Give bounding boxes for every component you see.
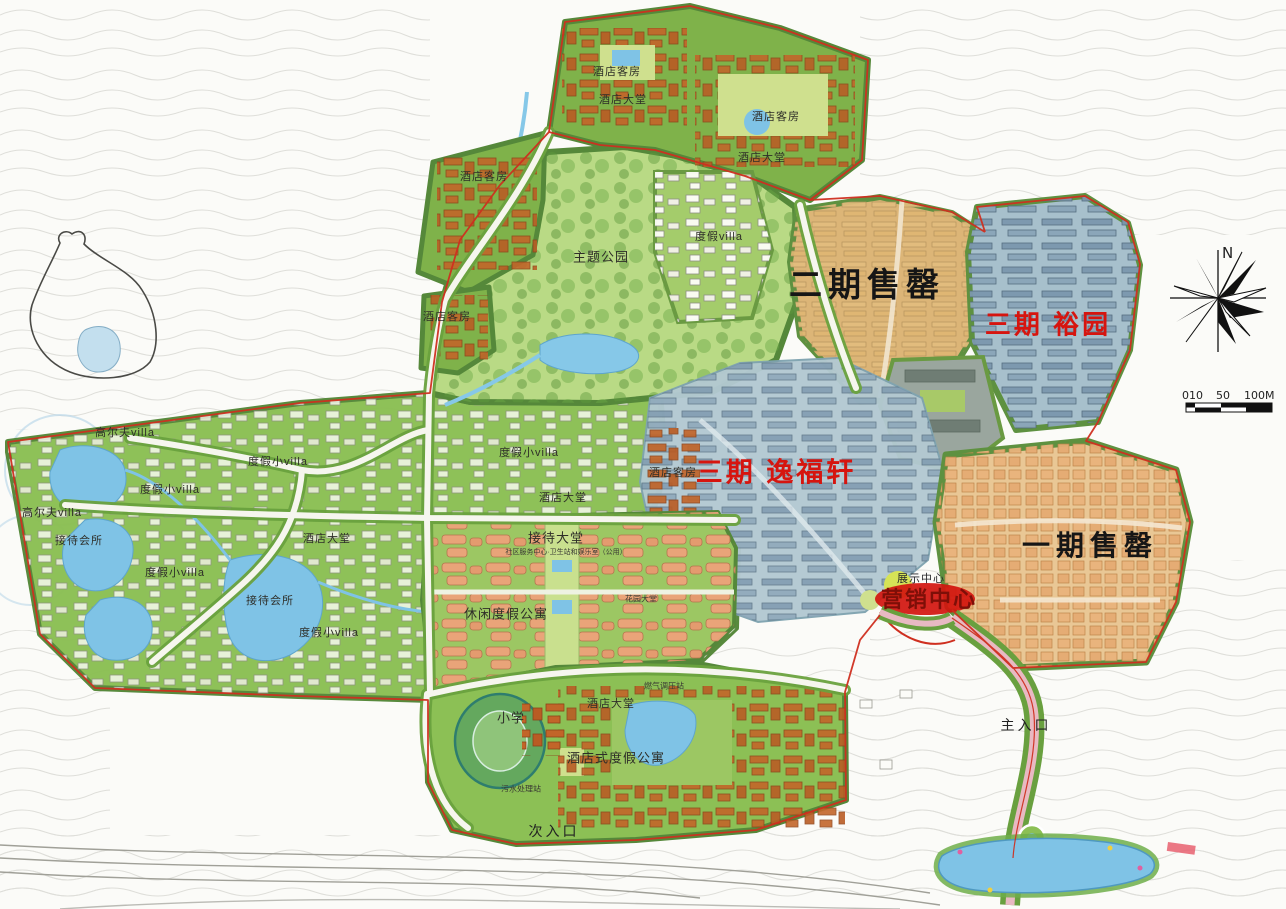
label-theme-park: 主题公园: [573, 247, 629, 266]
label-reception-club: 接待会所: [246, 592, 294, 608]
scale-tick-left: 010: [1182, 389, 1203, 402]
masterplan-drawing: N 010 50 100M: [0, 0, 1286, 909]
label-hotel-lobby: 酒店大堂: [539, 489, 587, 505]
label-reception-club: 接待会所: [55, 532, 103, 548]
label-reception-hall: 接待大堂: [528, 528, 584, 547]
label-hotel-lobby: 酒店大堂: [587, 695, 635, 711]
label-hotel-style-apartments: 酒店式度假公寓: [567, 748, 665, 767]
label-hotel-rooms: 酒店客房: [593, 63, 641, 79]
label-small-resort-villa: 度假小villa: [248, 453, 308, 469]
label-main-entrance: 主入口: [1001, 715, 1052, 735]
entrance-pond: [939, 838, 1155, 892]
pond: [84, 597, 152, 660]
label-hotel-rooms: 酒店客房: [752, 108, 800, 124]
label-golf-villa: 高尔夫villa: [22, 504, 82, 520]
label-reception-note: 社区服务中心·卫生站和娱乐室（公用）: [505, 547, 626, 557]
label-sewage-station: 污水处理站: [501, 784, 541, 795]
small-pond: [78, 326, 121, 372]
scale-tick-mid: 50: [1216, 389, 1230, 402]
label-small-resort-villa: 度假小villa: [299, 624, 359, 640]
label-phase2-sold-out: 二期售罄: [789, 258, 945, 306]
label-gas-station: 燃气调压站: [644, 681, 684, 692]
label-leisure-apartments: 休闲度假公寓: [464, 604, 548, 623]
label-resort-villa: 度假villa: [695, 228, 743, 244]
compass-north-label: N: [1222, 244, 1233, 262]
resort-villa-cluster: [655, 172, 772, 322]
resort-masterplan-map: N 010 50 100M 酒店客房 酒店大堂 酒店客房 酒店大堂 酒店客房 酒…: [0, 0, 1286, 909]
label-marketing-center: 营销中心: [881, 582, 977, 614]
compass-rose: N: [1170, 244, 1266, 352]
scale-tick-right: 100M: [1244, 389, 1275, 402]
label-hotel-rooms: 酒店客房: [649, 464, 697, 480]
label-golf-villa: 高尔夫villa: [95, 424, 155, 440]
label-phase3-yuyuan: 三期 裕园: [985, 305, 1111, 342]
label-phase3-yifuxuan: 三期 逸福轩: [696, 451, 857, 490]
scale-bar: 010 50 100M: [1182, 389, 1275, 412]
label-garden-hall: 花园大堂: [625, 594, 657, 605]
label-small-resort-villa: 度假小villa: [499, 444, 559, 460]
label-primary-school: 小学: [497, 708, 525, 727]
label-hotel-rooms: 酒店客房: [423, 308, 471, 324]
label-hotel-rooms: 酒店客房: [460, 168, 508, 184]
label-secondary-entrance: 次入口: [529, 821, 580, 841]
school-buildings: [522, 698, 564, 756]
label-hotel-lobby: 酒店大堂: [303, 530, 351, 546]
label-small-resort-villa: 度假小villa: [140, 481, 200, 497]
label-small-resort-villa: 度假小villa: [145, 564, 205, 580]
label-hotel-lobby: 酒店大堂: [599, 91, 647, 107]
label-hotel-lobby: 酒店大堂: [738, 149, 786, 165]
label-phase1-sold-out: 一期售罄: [1022, 524, 1158, 564]
